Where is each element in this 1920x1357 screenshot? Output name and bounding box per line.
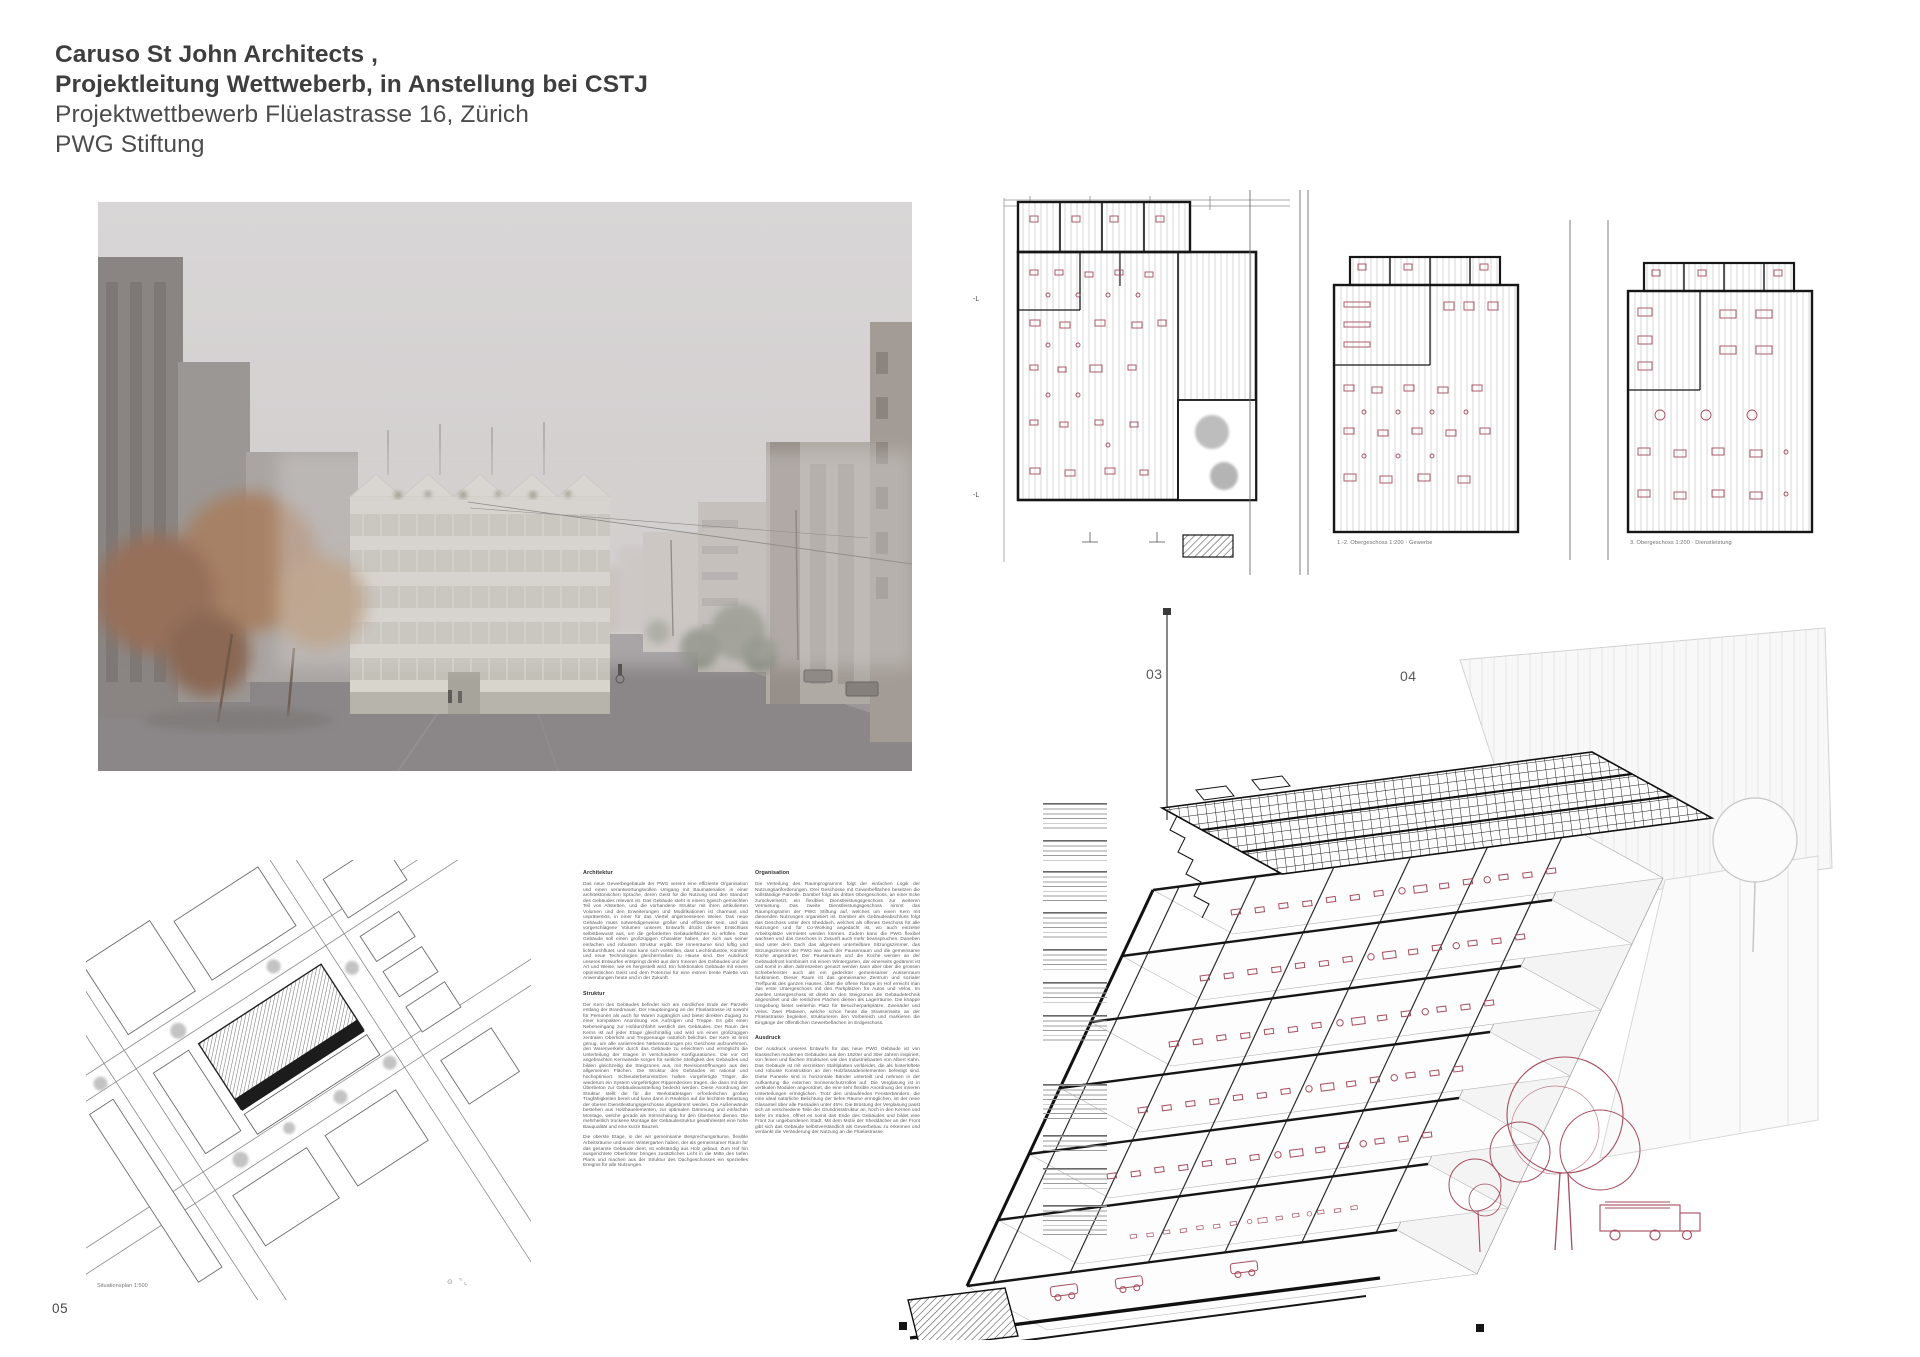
registration-mark — [1476, 1324, 1484, 1332]
paragraph-struktur-1: Der Kern des Gebäudes befindet sich am n… — [583, 1003, 748, 1131]
essay-column-2: Organisation Die Verteilung des Raumprog… — [755, 870, 920, 1141]
paragraph-ausdruck: Der Ausdruck unseres Entwurfs für das ne… — [755, 1047, 920, 1136]
floor-plans-art — [960, 190, 1840, 590]
floor-plans-strip — [960, 190, 1840, 590]
essay-column-1: Architektur Das neue Gewerbegebäude der … — [583, 870, 748, 1174]
heading-architektur: Architektur — [583, 870, 748, 876]
fire-truck — [1600, 1202, 1700, 1240]
title-line-2: Projektleitung Wettweberb, in Anstellung… — [55, 70, 648, 100]
plan-datum-mark: -L — [973, 492, 979, 499]
site-plan-art — [86, 860, 531, 1300]
site-plan — [86, 860, 531, 1300]
paragraph-organisation: Die Verteilung des Raumprogramms folgt d… — [755, 882, 920, 1026]
heading-struktur: Struktur — [583, 991, 748, 997]
heading-organisation: Organisation — [755, 870, 920, 876]
heading-ausdruck: Ausdruck — [755, 1035, 920, 1041]
floor-plan-b — [1334, 257, 1518, 532]
title-line-1: Caruso St John Architects , — [55, 40, 648, 70]
registration-mark — [899, 1322, 907, 1330]
title-block: Caruso St John Architects , Projektleitu… — [55, 40, 648, 160]
ramp-hatch — [908, 1288, 1018, 1340]
material-spec-legend — [1043, 803, 1107, 1236]
page-number: 05 — [52, 1301, 68, 1316]
floor-plan-a — [1018, 202, 1256, 557]
plan-datum-mark: -L — [973, 296, 979, 303]
portfolio-sheet: { "header": { "line1": "Caruso St John A… — [0, 0, 1920, 1357]
plan-caption-dienstleistung: 3. Obergeschoss 1:200 · Dienstleistung — [1630, 540, 1732, 546]
site-plan-scale-glyphs: ⊙ ⌝⌞ — [447, 1278, 469, 1286]
paragraph-struktur-2: Die oberste Etage, in der wir gemeinsame… — [583, 1135, 748, 1168]
street-view-art — [98, 202, 912, 771]
floor-plan-c — [1628, 263, 1812, 532]
plan-caption-gewerbe: 1.-2. Obergeschoss 1:200 · Gewerbe — [1337, 540, 1432, 546]
street-view-rendering — [98, 202, 912, 771]
axonometric-section — [900, 595, 1840, 1340]
axonometric-art — [900, 595, 1840, 1340]
site-plan-caption: Situationsplan 1:500 — [97, 1283, 148, 1289]
subtitle-project: Projektwettbewerb Flüelastrasse 16, Züri… — [55, 100, 648, 130]
paragraph-architektur: Das neue Gewerbegebäude der PWG vereint … — [583, 882, 748, 982]
subtitle-client: PWG Stiftung — [55, 130, 648, 160]
